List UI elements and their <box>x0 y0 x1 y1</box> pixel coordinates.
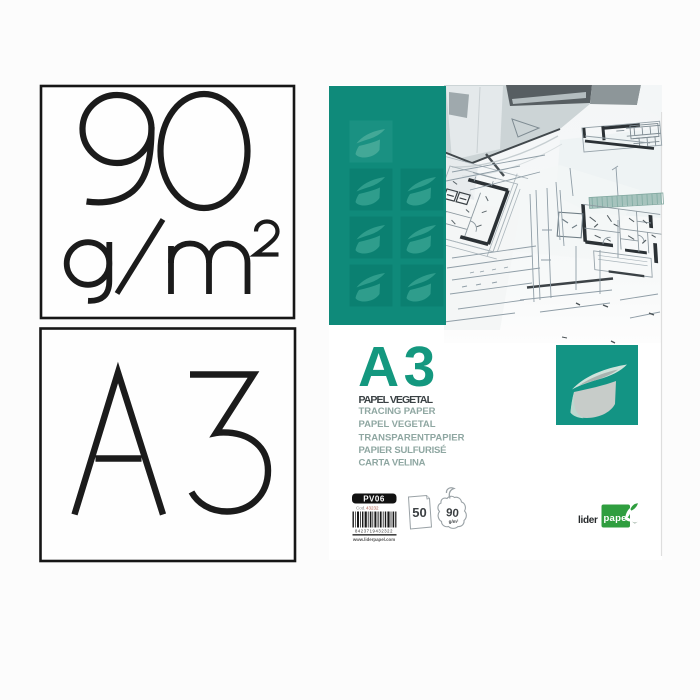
svg-text:PAPIER SULFURISÉ: PAPIER SULFURISÉ <box>359 445 447 456</box>
svg-text:PV06: PV06 <box>363 495 385 504</box>
svg-text:TRACING PAPER: TRACING PAPER <box>359 406 436 417</box>
svg-text:www.liderpapel.com: www.liderpapel.com <box>352 537 395 542</box>
svg-text:8423719432322: 8423719432322 <box>355 529 393 534</box>
svg-text:CARTA VELINA: CARTA VELINA <box>359 458 426 469</box>
svg-text:pape: pape <box>604 513 627 524</box>
svg-text:lider: lider <box>578 515 598 526</box>
svg-text:50: 50 <box>412 505 426 520</box>
svg-text:A3: A3 <box>358 335 440 399</box>
svg-text:g/m²: g/m² <box>449 519 459 524</box>
svg-text:TRANSPARENTPAPIER: TRANSPARENTPAPIER <box>359 433 465 444</box>
svg-text:PAPEL VEGETAL: PAPEL VEGETAL <box>359 394 434 406</box>
svg-text:PAPEL VEGETAL: PAPEL VEGETAL <box>359 419 436 430</box>
svg-text:43232: 43232 <box>366 506 379 511</box>
svg-text:Cod.: Cod. <box>356 506 366 511</box>
